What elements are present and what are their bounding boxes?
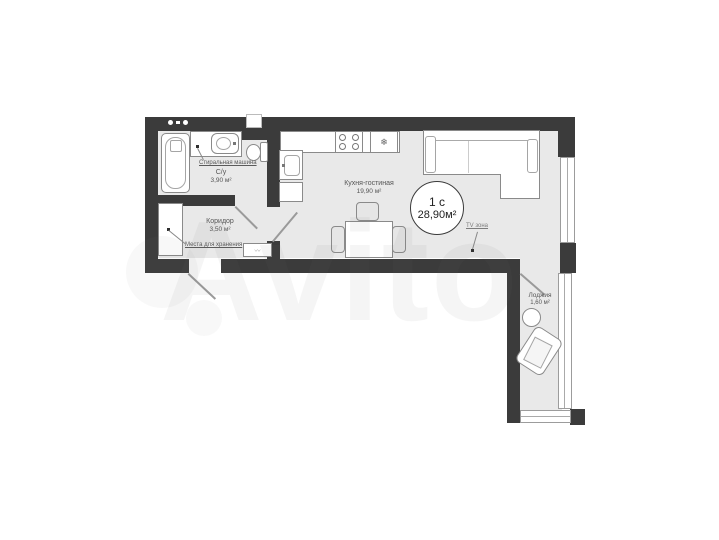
sofa bbox=[423, 130, 540, 175]
sofa-chaise bbox=[500, 174, 540, 199]
unit-area-badge: 1 с 28,90м² bbox=[410, 181, 464, 235]
fridge-snowflake-icon: ❄ bbox=[370, 131, 398, 153]
toilet-cistern bbox=[260, 142, 268, 162]
chair-right bbox=[392, 226, 406, 253]
wall-bottom-main bbox=[221, 259, 520, 273]
kitchen-lower-cabinet bbox=[279, 182, 303, 202]
bath-faucet-icon bbox=[168, 119, 188, 126]
unit-type: 1 с bbox=[429, 195, 445, 209]
wall-right-mid bbox=[560, 243, 576, 273]
living-room-window bbox=[560, 157, 575, 243]
chair-top bbox=[356, 202, 379, 221]
entry-bench: 〰 bbox=[243, 243, 272, 257]
unit-total-area: 28,90м² bbox=[418, 209, 457, 221]
dining-table bbox=[345, 221, 393, 258]
wall-shaft-notch bbox=[246, 114, 262, 128]
tv-zone-dot bbox=[471, 249, 474, 252]
bathroom-label: С/у 3,90 м² bbox=[196, 168, 246, 186]
chair-left bbox=[331, 226, 345, 253]
entrance-door bbox=[188, 273, 216, 300]
storage-closet bbox=[158, 203, 183, 256]
wall-toilet-block bbox=[242, 131, 280, 140]
corridor-label: Коридор 3,50 м² bbox=[192, 217, 248, 235]
loggia-label: Лоджия 1,60 м² bbox=[515, 292, 565, 308]
kitchen-living-label: Кухня-гостиная 19,90 м² bbox=[329, 179, 409, 197]
loggia-bottom-window bbox=[520, 410, 571, 423]
bathtub bbox=[161, 133, 190, 193]
bench-decor-icon: 〰 bbox=[254, 246, 260, 255]
watermark-circle-small bbox=[186, 300, 222, 336]
wall-bottom-left bbox=[145, 259, 189, 273]
wall-loggia-corner bbox=[570, 409, 585, 425]
washbasin bbox=[211, 133, 239, 154]
storage-label: Места для хранения bbox=[185, 242, 242, 248]
wall-left bbox=[145, 117, 158, 273]
stove bbox=[335, 131, 363, 153]
toilet-bowl bbox=[246, 144, 261, 161]
wall-top bbox=[145, 117, 575, 131]
washing-machine-label: Стиральная машина bbox=[199, 160, 257, 166]
wall-loggia-left bbox=[507, 259, 520, 423]
kitchen-sink-cabinet bbox=[279, 150, 303, 180]
wall-right-top bbox=[558, 117, 575, 157]
loggia-round-table bbox=[522, 308, 541, 327]
tv-zone-label: TV зона bbox=[466, 223, 488, 229]
floor-plan: Стиральная машина ❄ 1 с 28,90м² С/у 3,90… bbox=[0, 0, 719, 540]
